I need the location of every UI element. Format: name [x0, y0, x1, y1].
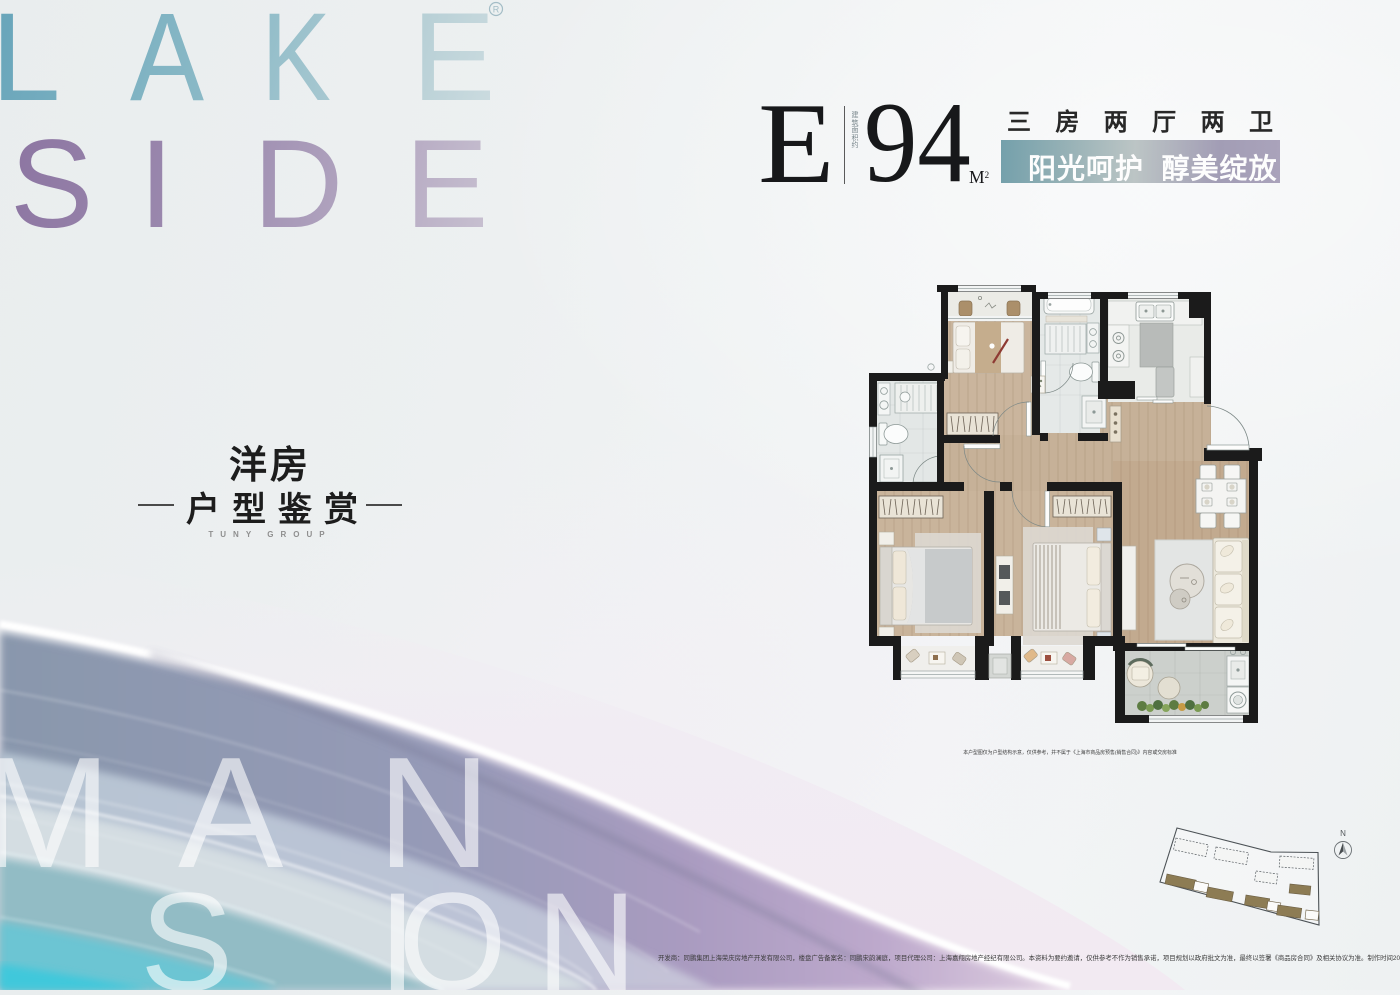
svg-text:S: S: [140, 863, 233, 990]
svg-text:M: M: [0, 725, 112, 901]
svg-text:K: K: [261, 0, 331, 127]
svg-text:E: E: [405, 115, 488, 250]
svg-text:O: O: [398, 863, 507, 990]
svg-text:N: N: [536, 863, 637, 990]
svg-text:D: D: [253, 115, 343, 250]
svg-text:E: E: [412, 0, 495, 127]
svg-text:N: N: [1340, 829, 1346, 838]
svg-text:L: L: [0, 0, 61, 127]
svg-text:R: R: [493, 5, 500, 15]
svg-text:S: S: [10, 115, 93, 250]
svg-text:I: I: [139, 115, 174, 250]
svg-text:A: A: [130, 0, 205, 127]
